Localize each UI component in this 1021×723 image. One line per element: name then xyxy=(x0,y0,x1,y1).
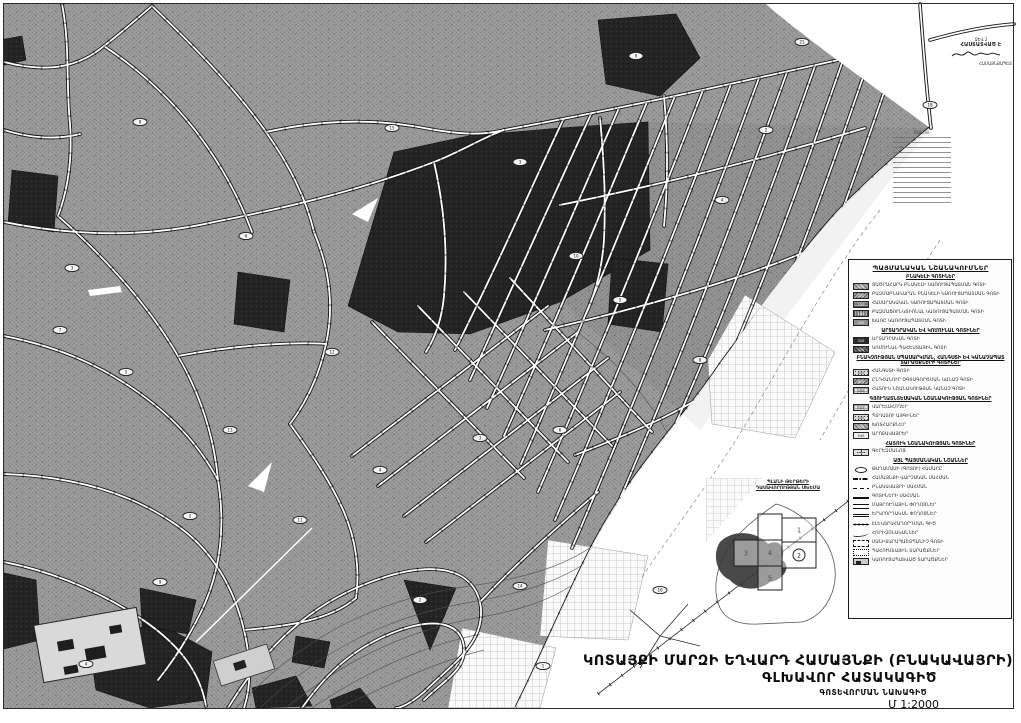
legend-swatch-dots: 520 xyxy=(853,414,869,421)
inset-sheet-number: 5 xyxy=(768,575,772,583)
legend-item-label: ԿՈՄՈՒՆԱԼ-ՊԱՀԵՍՏԱՅԻՆ ԳՈՏԻ xyxy=(872,347,947,352)
legend-item-label: ՎԱՐԵԼԱՀՈՂԵՐ xyxy=(872,406,908,411)
legend-item-label: ԱՐՈՏԱՎԱՅՐԵՐ xyxy=(872,433,908,438)
legend-item: 540ԱՐՈՏԱՎԱՅՐԵՐ xyxy=(853,432,1008,440)
legend-item-label: ՍԱՆԻՏԱՐԱՊԱՇՏՊԱՆԻՉ ԳՈՏԻ xyxy=(872,541,943,546)
legend-item-label: ՊՏՂԱՏՈՒ ԱՅԳԻՆԵՐ xyxy=(872,415,919,420)
legend-section-header: ԲՆԱԿՉՈՒԹՅԱՆ ՍՊԱՍԱՐԿՄԱՆ, ՀԱՆԳՍՏԻ ԵՎ ԿԱՆԱՉ… xyxy=(853,356,1008,367)
legend-swatch-ht1: 530 xyxy=(853,423,869,430)
legend-item: ԹԱՂԱՄԱՍԻ (ԳՈՏՈՒ) ՀԱՄԱՐԸ xyxy=(853,467,1008,475)
inset-header: ՊԼԱՆԻ ԹԵՐԹԵՐԻ ԴԱՍԱՎՈՐՈՒԹՅԱՆ ՍԽԵՄԱ xyxy=(732,480,844,492)
legend-swatch-grid: 430 xyxy=(853,387,869,394)
legend-section-header: ԱՐՏԱԴՐԱԿԱՆ ԵՎ ԿՈՄՈՒՆԱԼ ԳՈՏԻՆԵՐ xyxy=(853,329,1008,335)
legend-item: ԿԱՌՈՒՑԱՊԱՏՎԱԾ ՏԱՐԱԾՔՆԵՐ xyxy=(853,557,1008,565)
legend-body: ԲՆԱԿԵԼԻ ԳՈՏԻՆԵՐ210ՑԱԾՐԱՀԱՐԿ ԲՆԱԿԵԼԻ ԿԱՌՈ… xyxy=(853,275,1008,565)
legend-section-header: ԳՅՈՒՂԱՏՆՏԵՍԱԿԱՆ ՆՇԱՆԱԿՈՒԹՅԱՆ ԳՈՏԻՆԵՐ xyxy=(853,397,1008,403)
inset-sheet-number: 1 xyxy=(797,527,801,535)
legend-item: ՊԱՀՈՒՍՏԱՅԻՆ ՏԱՐԱԾՔՆԵՐ xyxy=(853,548,1008,556)
legend-swatch-curve xyxy=(853,531,869,537)
legend-item: 420ԸՆԴՀԱՆՈՒՐ ՕԳՏԱԳՈՐԾՄԱՆ ԿԱՆԱՉ ԳՈՏԻ xyxy=(853,378,1008,386)
legend-swatch-ht1: 210 xyxy=(853,283,869,290)
legend-item: 230ՀԱՍԱՐԱԿԱԿԱՆ ԿԱՌՈՒՑԱՊԱՏՄԱՆ ԳՈՏԻ xyxy=(853,301,1008,309)
legend-item: ԷԼԵԿՏՐԱՀԱՂՈՐԴՄԱՆ ԳԻԾ xyxy=(853,521,1008,529)
legend-item: 410ՀԱՆԳՍՏԻ ԳՈՏԻ xyxy=(853,369,1008,377)
legend-swatch-dash xyxy=(853,488,869,490)
scanned-map-page: 8352946121510311214586413731621189241 ԾԱ… xyxy=(0,0,1021,723)
legend-item-label: ԳԵՐԵԶՄԱՆՈՑ xyxy=(872,450,906,455)
stamp-signer-label: ՀԱՄԱՅՆՔԱՊԵՏ xyxy=(950,61,1012,66)
legend-item-label: ԹԱՂԱՄԱՍԻ (ԳՈՏՈՒ) ՀԱՄԱՐԸ xyxy=(872,468,942,473)
legend-item-label: ԳՈՏԻՆԵՐԻ ՍԱՀՄԱՆ xyxy=(872,495,920,500)
legend-item: 250ԽԱՌԸ ԿԱՌՈՒՑԱՊԱՏՄԱՆ ԳՈՏԻ xyxy=(853,319,1008,327)
legend-item: ՄԱՅՐՈՒՂԱՅԻՆ ՓՈՂՈՑՆԵՐ xyxy=(853,503,1008,511)
sheet-index-inset: ՊԼԱՆԻ ԹԵՐԹԵՐԻ ԴԱՍԱՎՈՐՈՒԹՅԱՆ ՍԽԵՄԱ 12345 … xyxy=(706,478,844,625)
notes-block: ԾԱՆՈԹ. xyxy=(893,137,951,207)
legend-item: ՍԱՆԻՏԱՐԱՊԱՇՏՊԱՆԻՉ ԳՈՏԻ xyxy=(853,539,1008,547)
legend-item: ԲՆԱԿԱՎԱՅՐԻ ՍԱՀՄԱՆ xyxy=(853,485,1008,493)
legend-item: 430ՀԱՏՈՒԿ ՆՇԱՆԱԿՈՒԹՅԱՆ ԿԱՆԱՉ ԳՈՏԻ xyxy=(853,387,1008,395)
legend-section-header: ԲՆԱԿԵԼԻ ԳՈՏԻՆԵՐ xyxy=(853,275,1008,281)
map-title-line1: ԿՈՏԱՅՔԻ ՄԱՐԶԻ ԵՂՎԱՐԴ ՀԱՄԱՅՆՔԻ (ԲՆԱԿԱՎԱՅՐ… xyxy=(583,653,1013,669)
legend-item: 320ԿՈՄՈՒՆԱԼ-ՊԱՀԵՍՏԱՅԻՆ ԳՈՏԻ xyxy=(853,346,1008,354)
legend-item: 530ԽՈՏՀԱՐՔՆԵՐ xyxy=(853,422,1008,430)
legend-swatch-bld xyxy=(853,558,869,565)
legend-item-label: ՀՈՐԻԶՈՆԱԿԱՆՆԵՐ xyxy=(872,532,918,537)
legend-item: ԳՈՏԻՆԵՐԻ ՍԱՀՄԱՆ xyxy=(853,494,1008,502)
signature-squiggle xyxy=(950,48,1002,60)
legend-swatch-empty: 540 xyxy=(853,432,869,439)
legend-swatch-ht5: 250 xyxy=(853,319,869,326)
legend-item: 310ԱՐՏԱԴՐԱԿԱՆ ԳՈՏԻ xyxy=(853,336,1008,344)
legend-item-label: ԵՐԿՐՈՐԴԱԿԱՆ ՓՈՂՈՑՆԵՐ xyxy=(872,513,937,518)
legend-item-label: ՑԱԾՐԱՀԱՐԿ ԲՆԱԿԵԼԻ ԿԱՌՈՒՑԱՊԱՏՄԱՆ ԳՈՏԻ xyxy=(872,284,986,289)
legend-swatch-road2 xyxy=(853,514,869,517)
legend-swatch-road1 xyxy=(853,504,869,509)
legend-box: ՊԱՅՄԱՆԱԿԱՆ ՆՇԱՆԱԿՈՒՄՆԵՐ ԲՆԱԿԵԼԻ ԳՈՏԻՆԵՐ2… xyxy=(848,259,1012,619)
legend-item-label: ԲՆԱԿԱՎԱՅՐԻ ՍԱՀՄԱՆ xyxy=(872,486,927,491)
legend-item-label: ՀԱՏՈՒԿ ՆՇԱՆԱԿՈՒԹՅԱՆ ԿԱՆԱՉ ԳՈՏԻ xyxy=(872,388,965,393)
legend-item: 510ՎԱՐԵԼԱՀՈՂԵՐ xyxy=(853,404,1008,412)
legend-item-label: ԿԱՌՈՒՑԱՊԱՏՎԱԾ ՏԱՐԱԾՔՆԵՐ xyxy=(872,559,948,564)
legend-item-label: ԸՆԴՀԱՆՈՒՐ ՕԳՏԱԳՈՐԾՄԱՆ ԿԱՆԱՉ ԳՈՏԻ xyxy=(872,379,973,384)
title-block: ԿՈՏԱՅՔԻ ՄԱՐԶԻ ԵՂՎԱՐԴ ՀԱՄԱՅՆՔԻ (ԲՆԱԿԱՎԱՅՐ… xyxy=(583,653,1013,711)
legend-item-label: ՀԱՆԳՍՏԻ ԳՈՏԻ xyxy=(872,370,910,375)
legend-swatch-line2 xyxy=(853,497,869,499)
legend-item: ՀԱՄԱՅՆՔԻ ՎԱՐՉԱԿԱՆ ՍԱՀՄԱՆ xyxy=(853,476,1008,484)
approval-stamp: ՁԵՎ 2 ՀԱՍՏԱՏՎԱԾ Է ՀԱՄԱՅՆՔԱՊԵՏ xyxy=(950,37,1012,66)
map-title-line2: ԳԼԽԱՎՈՐ ՀԱՏԱԿԱԳԻԾ xyxy=(583,670,1013,686)
legend-swatch-htdark: 320 xyxy=(853,346,869,353)
inset-sheet-number: 4 xyxy=(768,550,773,558)
legend-item-label: ԷԼԵԿՏՐԱՀԱՂՈՐԴՄԱՆ ԳԻԾ xyxy=(872,523,936,528)
legend-swatch-dotrect xyxy=(853,549,869,556)
map-subtitle: ԳՈՏԵՎՈՐՄԱՆ ՆԱԽԱԳԻԾ xyxy=(583,688,1013,697)
legend-item-label: ԲԱԶՄԱՖՈՒՆԿՑԻՈՆԱԼ ԿԱՌՈՒՑԱՊԱՏՄԱՆ ԳՈՏԻ xyxy=(872,311,984,316)
map-scale: Մ 1:2000 xyxy=(583,698,1013,711)
legend-item-label: ԲԱԶՄԱԲՆԱԿԱՐԱՆ ԲՆԱԿԵԼԻ ԿԱՌՈՒՑԱՊԱՏՄԱՆ ԳՈՏԻ xyxy=(872,293,999,298)
notes-caption: ԾԱՆՈԹ. xyxy=(893,130,951,135)
legend-swatch-cross: 610 xyxy=(853,449,869,456)
legend-swatch-dashdot xyxy=(853,478,869,480)
legend-swatch-oval xyxy=(855,467,867,473)
legend-item: ԵՐԿՐՈՐԴԱԿԱՆ ՓՈՂՈՑՆԵՐ xyxy=(853,512,1008,520)
legend-item-label: ԽՈՏՀԱՐՔՆԵՐ xyxy=(872,424,906,429)
inset-sheet xyxy=(758,514,782,540)
legend-item-label: ՄԱՅՐՈՒՂԱՅԻՆ ՓՈՂՈՑՆԵՐ xyxy=(872,504,936,509)
legend-swatch-ht4: 240 xyxy=(853,310,869,317)
legend-swatch-power xyxy=(853,523,869,526)
legend-swatch-dots: 410 xyxy=(853,369,869,376)
legend-item-label: ԽԱՌԸ ԿԱՌՈՒՑԱՊԱՏՄԱՆ ԳՈՏԻ xyxy=(872,320,946,325)
legend-item-label: ՀԱՍԱՐԱԿԱԿԱՆ ԿԱՌՈՒՑԱՊԱՏՄԱՆ ԳՈՏԻ xyxy=(872,302,969,307)
legend-item-label: ՊԱՀՈՒՍՏԱՅԻՆ ՏԱՐԱԾՔՆԵՐ xyxy=(872,550,940,555)
legend-item: 210ՑԱԾՐԱՀԱՐԿ ԲՆԱԿԵԼԻ ԿԱՌՈՒՑԱՊԱՏՄԱՆ ԳՈՏԻ xyxy=(853,283,1008,291)
legend-swatch-solid: 310 xyxy=(853,337,869,344)
legend-swatch-ht3: 230 xyxy=(853,301,869,308)
legend-item-label: ԱՐՏԱԴՐԱԿԱՆ ԳՈՏԻ xyxy=(872,338,920,343)
legend-item: 240ԲԱԶՄԱՖՈՒՆԿՑԻՈՆԱԼ ԿԱՌՈՒՑԱՊԱՏՄԱՆ ԳՈՏԻ xyxy=(853,310,1008,318)
legend-swatch-grid: 510 xyxy=(853,404,869,411)
inset-sheet-number: 3 xyxy=(744,550,748,558)
legend-item: 520ՊՏՂԱՏՈՒ ԱՅԳԻՆԵՐ xyxy=(853,413,1008,421)
inset-map: 12345 2 xyxy=(706,478,844,625)
legend-swatch-ht2: 220 xyxy=(853,292,869,299)
legend-title: ՊԱՅՄԱՆԱԿԱՆ ՆՇԱՆԱԿՈՒՄՆԵՐ xyxy=(853,264,1008,272)
legend-item: 610ԳԵՐԵԶՄԱՆՈՑ xyxy=(853,449,1008,457)
inset-circled-number: 2 xyxy=(797,553,801,560)
legend-section-header: ՀԱՏՈՒԿ ՆՇԱՆԱԿՈՒԹՅԱՆ ԳՈՏԻՆԵՐ xyxy=(853,442,1008,448)
legend-item-label: ՀԱՄԱՅՆՔԻ ՎԱՐՉԱԿԱՆ ՍԱՀՄԱՆ xyxy=(872,477,949,482)
legend-item: ՀՈՐԻԶՈՆԱԿԱՆՆԵՐ xyxy=(853,530,1008,538)
legend-swatch-ht2: 420 xyxy=(853,378,869,385)
legend-swatch-dashrect xyxy=(853,540,869,547)
legend-section-header: ԱՅԼ ՊԱՅՄԱՆԱԿԱՆ ՆՇԱՆՆԵՐ xyxy=(853,459,1008,465)
legend-item: 220ԲԱԶՄԱԲՆԱԿԱՐԱՆ ԲՆԱԿԵԼԻ ԿԱՌՈՒՑԱՊԱՏՄԱՆ Գ… xyxy=(853,292,1008,300)
